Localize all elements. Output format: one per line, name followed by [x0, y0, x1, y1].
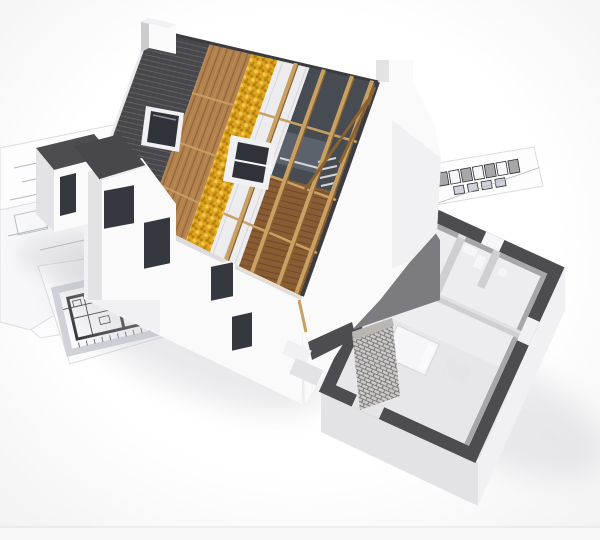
skylight-closed — [141, 106, 184, 152]
chimney — [141, 18, 176, 54]
window — [231, 311, 253, 352]
skylight-glass — [147, 111, 179, 147]
wing-left-shade — [88, 168, 102, 300]
bottom-strip — [0, 527, 600, 540]
wing-door — [143, 216, 171, 270]
brick-pillar — [352, 318, 400, 410]
garage-window — [60, 173, 76, 216]
strip-fill — [0, 528, 600, 540]
skylight-open — [223, 135, 276, 190]
wing-window — [103, 184, 135, 230]
render-canvas — [0, 0, 600, 540]
window — [210, 261, 234, 302]
gable-chimney-shade — [376, 60, 389, 82]
house-render — [0, 0, 600, 540]
